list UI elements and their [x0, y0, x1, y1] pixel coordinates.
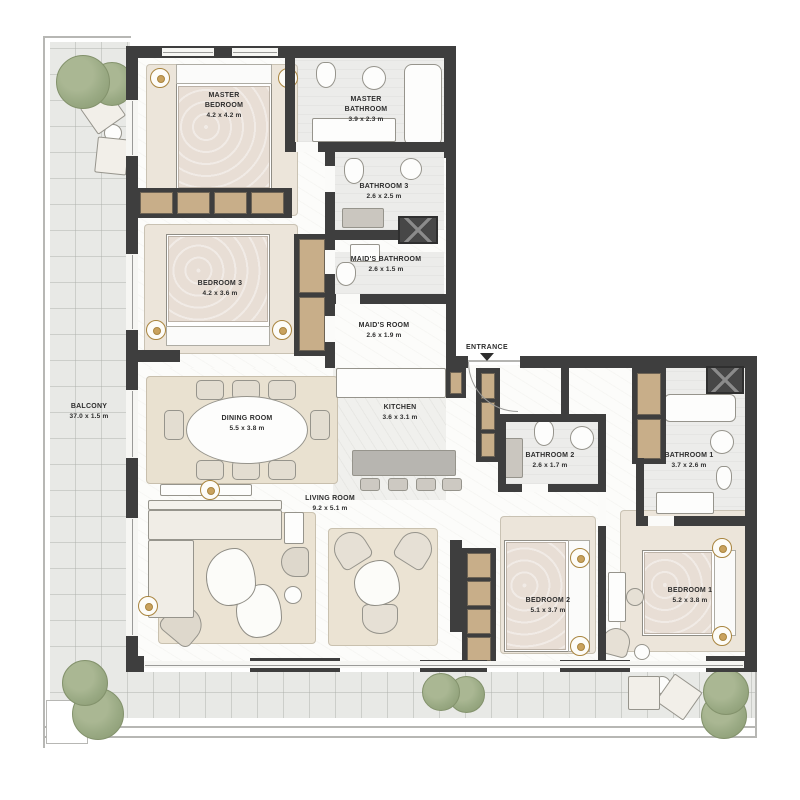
bedroom1-desk-chair — [626, 588, 644, 606]
room-dims: 2.6 x 1.5 m — [337, 265, 435, 274]
compass-medallion — [570, 636, 590, 656]
bathroom3-toilet — [344, 158, 364, 184]
room-name: MAID'S ROOM — [359, 322, 410, 329]
bathroom1-wardrobe-door — [637, 373, 661, 415]
window — [126, 254, 138, 330]
wall — [561, 364, 569, 414]
bedroom2-wardrobe-door — [467, 553, 491, 578]
bathroom3-vanity — [342, 208, 384, 228]
room-label-bathroom-2: BATHROOM 22.6 x 1.7 m — [508, 451, 592, 471]
balcony-lounge-chair — [628, 676, 660, 710]
room-dims: 37.0 x 1.5 m — [53, 412, 125, 421]
door-opening — [296, 142, 318, 152]
dining-chair — [268, 460, 296, 480]
door-opening — [648, 516, 674, 526]
room-name: BEDROOM 3 — [198, 280, 243, 287]
dressing-closet-door — [140, 192, 173, 214]
hall-closet-door — [481, 402, 495, 430]
door-opening — [325, 166, 335, 192]
room-name: BATHROOM 3 — [359, 183, 408, 190]
compass-medallion — [570, 548, 590, 568]
wall — [450, 540, 462, 632]
compass-medallion — [138, 596, 158, 616]
entrance-arrow-icon — [480, 353, 494, 361]
wall — [636, 458, 644, 524]
room-label-balcony: BALCONY37.0 x 1.5 m — [53, 402, 125, 422]
room-name: MAID'S BATHROOM — [351, 256, 422, 263]
living-sofa-seats — [148, 510, 282, 540]
wall — [498, 414, 506, 492]
bathroom2-toilet — [534, 420, 554, 446]
room-dims: 4.2 x 3.6 m — [178, 289, 262, 298]
room-name: MASTER BATHROOM — [345, 96, 388, 113]
room-name: BEDROOM 1 — [668, 587, 713, 594]
room-dims: 2.6 x 1.9 m — [342, 331, 426, 340]
dressing-closet-door — [214, 192, 247, 214]
room-name: BATHROOM 2 — [525, 452, 574, 459]
master-bathtub — [404, 64, 442, 146]
room-dims: 9.2 x 5.1 m — [284, 504, 376, 513]
dining-chair — [196, 380, 224, 400]
door-opening — [336, 294, 360, 304]
wall — [498, 484, 606, 492]
compass-medallion — [146, 320, 166, 340]
window — [162, 48, 214, 56]
dressing-closet-door — [177, 192, 210, 214]
dining-chair — [196, 460, 224, 480]
balcony-railing — [43, 736, 757, 738]
room-label-dining-room: DINING ROOM5.5 x 3.8 m — [201, 414, 293, 434]
wall — [444, 46, 456, 158]
living-round-table — [284, 586, 302, 604]
room-name: MASTER BEDROOM — [205, 92, 243, 109]
room-dims: 4.2 x 4.2 m — [195, 111, 253, 120]
wall — [598, 414, 606, 670]
window — [126, 100, 138, 156]
bathroom3-shower — [400, 158, 422, 180]
bedroom-3-pillows — [166, 326, 270, 346]
compass-medallion — [712, 626, 732, 646]
kitchen-stool — [388, 478, 408, 491]
room-name: BATHROOM 1 — [664, 452, 713, 459]
door-opening — [325, 316, 335, 342]
room-dims: 3.9 x 2.3 m — [335, 115, 397, 124]
room-label-bathroom-1: BATHROOM 13.7 x 2.6 m — [647, 451, 731, 471]
living-sofa-back — [148, 500, 282, 510]
entry-closet-door — [450, 372, 462, 394]
wall — [330, 230, 402, 240]
wall — [285, 46, 295, 148]
room-label-bedroom-2: BEDROOM 25.1 x 3.7 m — [512, 596, 584, 616]
floor-plan: MASTER BEDROOM4.2 x 4.2 m MASTER BATHROO… — [0, 0, 800, 800]
compass-medallion — [150, 68, 170, 88]
living-halfround-chair — [281, 547, 309, 577]
balcony-railing — [43, 726, 757, 728]
compass-medallion — [200, 480, 220, 500]
window — [126, 390, 138, 458]
room-label-maids-bathroom: MAID'S BATHROOM2.6 x 1.5 m — [337, 255, 435, 275]
room-label-bedroom-3: BEDROOM 34.2 x 3.6 m — [178, 279, 262, 299]
door-opening — [522, 484, 548, 492]
tree — [703, 669, 749, 715]
bedroom2-wardrobe-door — [467, 581, 491, 606]
bathroom1-vanity — [656, 492, 714, 514]
living-coffee-table — [206, 548, 256, 606]
room-label-master-bathroom: MASTER BATHROOM3.9 x 2.3 m — [335, 95, 397, 125]
tree — [56, 55, 110, 109]
balcony-lounge-chair — [94, 136, 130, 175]
living-side-table — [284, 512, 304, 544]
dining-chair — [164, 410, 184, 440]
room-dims: 2.6 x 2.5 m — [342, 192, 426, 201]
tree — [62, 660, 108, 706]
room-label-bedroom-1: BEDROOM 15.2 x 3.8 m — [654, 586, 726, 606]
compass-medallion — [712, 538, 732, 558]
window — [126, 518, 138, 636]
door-opening — [325, 250, 335, 274]
kitchen-stool — [416, 478, 436, 491]
door-opening — [598, 492, 606, 526]
room-dims: 5.5 x 3.8 m — [201, 424, 293, 433]
kitchen-island — [352, 450, 456, 476]
dining-chair — [310, 410, 330, 440]
room-name: BALCONY — [71, 403, 107, 410]
room-name: DINING ROOM — [222, 415, 273, 422]
bathroom1-bathtub — [664, 394, 736, 422]
room-label-bathroom-3: BATHROOM 32.6 x 2.5 m — [342, 182, 426, 202]
wall — [498, 414, 606, 422]
bedroom2-wardrobe-door — [467, 637, 491, 661]
kitchen-stool — [442, 478, 462, 491]
room-dims: 5.2 x 3.8 m — [654, 596, 726, 605]
bedroom3-wardrobe-door — [299, 297, 325, 351]
master-shower — [362, 66, 386, 90]
wall — [745, 356, 757, 670]
tree — [422, 673, 460, 711]
room-label-kitchen: KITCHEN3.6 x 3.1 m — [358, 403, 442, 423]
balcony-railing — [43, 36, 131, 38]
living-center-table — [354, 560, 400, 606]
compass-medallion — [272, 320, 292, 340]
room-name: LIVING ROOM — [305, 495, 355, 502]
room-label-living-room: LIVING ROOM9.2 x 5.1 m — [284, 494, 376, 514]
room-label-master-bedroom: MASTER BEDROOM4.2 x 4.2 m — [195, 91, 253, 121]
kitchen-stool — [360, 478, 380, 491]
balcony-railing — [43, 36, 45, 748]
room-label-maids-room: MAID'S ROOM2.6 x 1.9 m — [342, 321, 426, 341]
room-dims: 5.1 x 3.7 m — [512, 606, 584, 615]
living-armchair — [362, 604, 398, 634]
room-dims: 3.7 x 2.6 m — [647, 461, 731, 470]
window — [144, 661, 744, 668]
bedroom2-wardrobe-door — [467, 609, 491, 634]
entrance-text: ENTRANCE — [466, 344, 508, 351]
bedroom1-side-table — [634, 644, 650, 660]
hall-closet-door — [481, 433, 495, 457]
bedroom3-wardrobe-door — [299, 239, 325, 293]
room-dims: 2.6 x 1.7 m — [508, 461, 592, 470]
room-dims: 3.6 x 3.1 m — [358, 413, 442, 422]
kitchen-counter — [336, 368, 446, 398]
dining-chair — [268, 380, 296, 400]
wall — [446, 152, 456, 368]
dressing-closet-door — [251, 192, 284, 214]
room-name: KITCHEN — [384, 404, 417, 411]
window — [232, 48, 278, 56]
bedroom1-desk — [608, 572, 626, 622]
master-bedroom-pillows — [176, 64, 272, 84]
bathroom2-shower — [570, 426, 594, 450]
room-name: BEDROOM 2 — [526, 597, 571, 604]
service-shaft — [398, 216, 438, 244]
service-shaft — [706, 366, 744, 394]
master-toilet — [316, 62, 336, 88]
entrance-label: ENTRANCE — [466, 344, 508, 361]
